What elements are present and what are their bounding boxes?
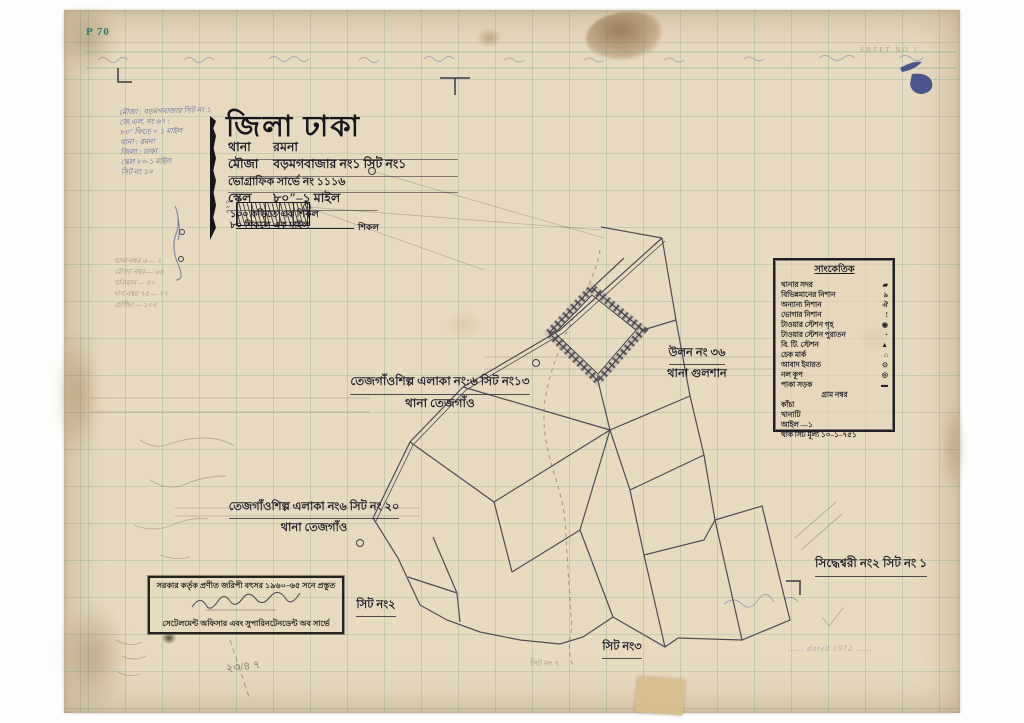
legend-symbol: ⌂ bbox=[884, 350, 888, 360]
legend-symbol: ! bbox=[886, 310, 888, 320]
sheet-number-faint: SHEET NO 1 bbox=[860, 46, 919, 54]
legend-footer: আইল —১ bbox=[781, 420, 888, 430]
scalebar-numbers: ৪২০ bbox=[222, 200, 233, 215]
stamp-line-1: সরকার কর্তৃক প্রণীত জরিপী বৎসর ১৯৬০–৬৫ স… bbox=[150, 581, 342, 591]
signature bbox=[186, 591, 306, 613]
legend-row: ভোগার নিশান! bbox=[781, 310, 888, 320]
label-ulon-gulshan: উলন নং ৩৬ থানা গুলশান bbox=[632, 344, 762, 384]
label-sheet-2: সিট নং২ bbox=[336, 596, 416, 617]
label-tejgaon-sheet20: তেজগাঁওশিল্প এলাকা নং৬ সিট নং ২০ থানা তে… bbox=[206, 498, 422, 538]
legend-title: সাংকেতিক bbox=[781, 263, 888, 278]
legend-row: থানার সদর▰ bbox=[781, 280, 888, 290]
scanned-map-paper: P 70 SHEET NO 1 জিলা ঢাকা থানা রমনা মৌজা… bbox=[64, 10, 960, 713]
contour-squiggles bbox=[116, 438, 234, 676]
legend-row: চেক মার্ক⌂ bbox=[781, 350, 888, 360]
handwritten-notes: মৌজা : বড়মগবাজার সিট নং ১ জে.এল. নং ৬৭ … bbox=[119, 104, 241, 177]
label-sheet-7-faint: সিট নং ৭ bbox=[530, 658, 559, 671]
legend-row: পাকা সড়ক▬ bbox=[781, 380, 888, 390]
legend-symbol: ◔ bbox=[884, 330, 888, 340]
legend-row: বিভিন্নমানের নিশান৯ bbox=[781, 290, 888, 300]
label-siddheswari: সিদ্ধেশ্বরী নং২ সিট নং ১ bbox=[776, 555, 966, 577]
legend-row: অন্যান্য নিশানঐ bbox=[781, 300, 888, 310]
top-table-rules bbox=[86, 52, 956, 68]
scale-bar-baseline bbox=[236, 228, 354, 229]
legend-footer: থাক সিট মূল্য ১০–১–৭৫১ bbox=[781, 430, 888, 440]
legend-footer: খানাটি bbox=[781, 410, 888, 420]
scale-bar bbox=[236, 202, 310, 226]
legend-symbol: ▬ bbox=[881, 380, 888, 390]
stamp-line-2: সেটেলমেন্ট অফিসার এবং সুপারিনটেনডেন্ট অব… bbox=[150, 619, 342, 629]
scale-bar-unit: শিকল bbox=[358, 220, 379, 235]
parcel-boundaries bbox=[373, 227, 790, 647]
label-tejgaon-sheet13: তেজগাঁওশিল্প এলাকা নং:৬ সিট নং১৩ থানা তে… bbox=[330, 373, 550, 415]
faint-handwriting-row bbox=[98, 56, 923, 63]
ink-blot bbox=[900, 62, 932, 94]
legend-row: বি. টি. স্টেশন▲ bbox=[781, 340, 888, 350]
page-corner-mark: P 70 bbox=[86, 26, 110, 38]
legend-symbol: ▲ bbox=[881, 340, 888, 350]
certification-stamp-box: সরকার কর্তৃক প্রণীত জরিপী বৎসর ১৯৬০–৬৫ স… bbox=[148, 576, 344, 634]
hatched-structure bbox=[549, 288, 643, 381]
legend-footer: কাঁচা bbox=[781, 400, 888, 410]
pencil-scribble: ২৩/৪ ৭ bbox=[225, 656, 261, 678]
legend-symbol: ◉ bbox=[882, 320, 888, 330]
legend-symbol: ◎ bbox=[882, 370, 888, 380]
dated-note-faint: …… dated 1972 …… bbox=[788, 644, 872, 653]
legend-row: নল কূপ◎ bbox=[781, 370, 888, 380]
legend-symbol: ⊙ bbox=[882, 360, 888, 370]
legend-symbol: ঐ bbox=[882, 300, 888, 310]
legend-row: টাওয়ার স্টেশন গৃহ◉ bbox=[781, 320, 888, 330]
title-block: জিলা ঢাকা থানা রমনা মৌজা বড়মগবাজার নং১ … bbox=[210, 104, 462, 250]
legend-symbol: ▰ bbox=[883, 280, 888, 290]
pencil-notes: থানা নম্বর ৬ — ২ মৌজা নম্বর — ৬৪ খতিয়ান… bbox=[114, 256, 234, 311]
legend-row: আবাদ ইমারত⊙ bbox=[781, 360, 888, 370]
legend-row: টাওয়ার স্টেশন পুরাতন◔ bbox=[781, 330, 888, 340]
legend-symbol: ৯ bbox=[883, 290, 888, 300]
label-sheet-3: সিট নং৩ bbox=[582, 638, 662, 659]
legend-box: সাংকেতিক থানার সদর▰ বিভিন্নমানের নিশান৯ … bbox=[773, 258, 895, 432]
legend-center-note: গ্রাম নম্বর bbox=[781, 390, 888, 400]
